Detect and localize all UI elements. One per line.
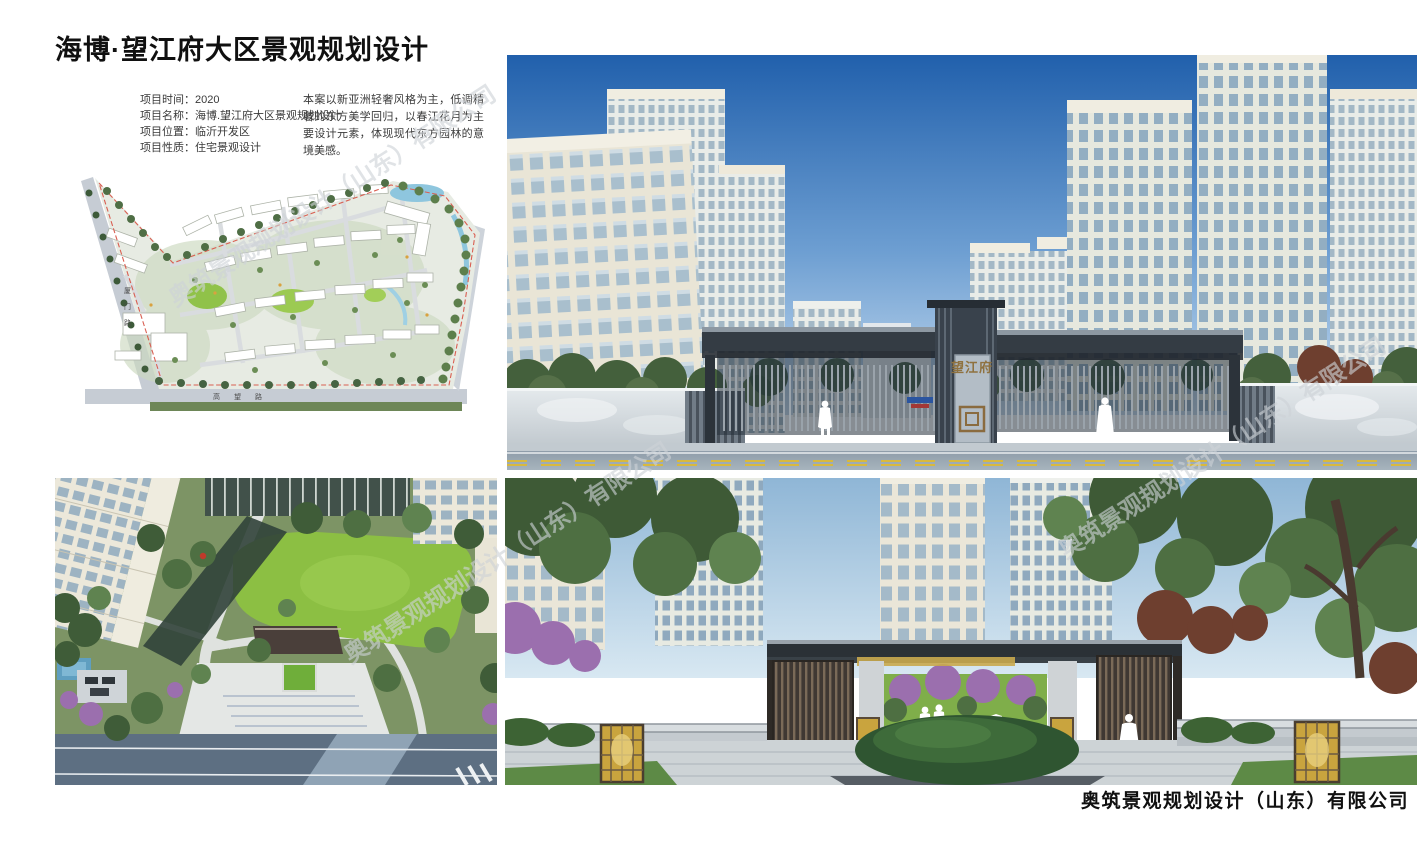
pavilion-garden-render — [505, 478, 1417, 785]
gate-entrance-render: 望江府 — [507, 55, 1417, 470]
road-label-bottom: 高望路 — [213, 392, 276, 401]
info-label: 项目时间： — [140, 94, 195, 106]
presentation-board: 海博·望江府大区景观规划设计 项目时间：2020 项目名称：海博.望江府大区景观… — [0, 0, 1417, 842]
courtyard-aerial-render — [55, 478, 497, 785]
info-value: 临沂开发区 — [195, 126, 250, 138]
lawn-highlight — [300, 555, 410, 611]
street — [55, 734, 497, 785]
info-value: 2020 — [195, 94, 219, 106]
sidewalk — [507, 443, 1417, 451]
info-label: 项目名称： — [140, 110, 195, 122]
site-plan-image: 厦门路 高望路 — [55, 165, 500, 435]
info-label: 项目性质： — [140, 142, 195, 154]
road-label-left: 厦门路 — [124, 287, 132, 335]
cage-lantern-left — [601, 725, 643, 782]
red-sculpture — [200, 553, 206, 559]
page-title: 海博·望江府大区景观规划设计 — [55, 28, 429, 67]
gate-sign-text: 望江府 — [951, 360, 993, 375]
seating-area — [77, 670, 127, 703]
cage-lantern-right — [1295, 722, 1339, 782]
info-label: 项目位置： — [140, 126, 195, 138]
info-value: 住宅景观设计 — [195, 142, 261, 154]
design-description: 本案以新亚洲轻奢风格为主，低调精奢的东方美学回归，以春江花月为主要设计元素，体现… — [303, 92, 484, 160]
footer-company-name: 奥筑景观规划设计（山东）有限公司 — [1081, 786, 1409, 813]
right-stone-wall — [1239, 383, 1417, 451]
gate-sign-pylon: 望江府 — [927, 300, 1005, 445]
